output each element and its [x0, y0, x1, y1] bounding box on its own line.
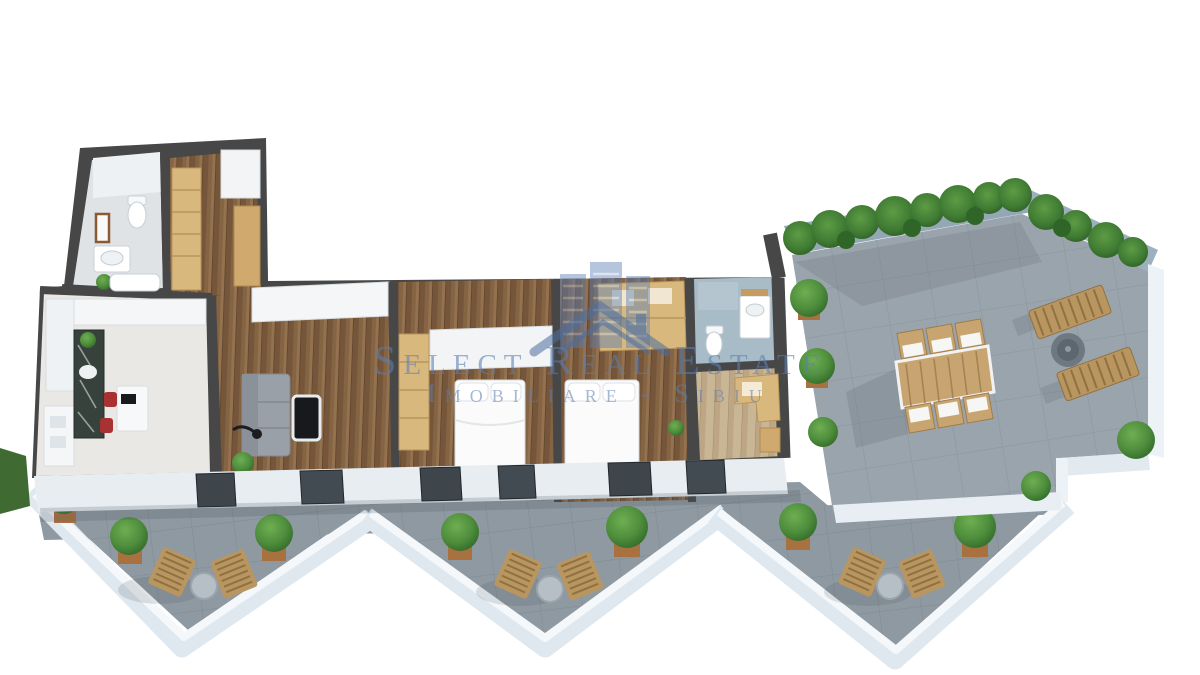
table-item [121, 394, 136, 404]
hall-wardrobe [172, 168, 201, 290]
bush [1117, 421, 1155, 459]
floor-plan-render: Select Real Estate Imobiliare - Sibiu [0, 0, 1200, 675]
palm-plant [903, 219, 921, 237]
palm-plant [1053, 219, 1071, 237]
living-plant [232, 452, 254, 474]
glass-door [420, 467, 462, 501]
round-ottoman [191, 573, 217, 599]
vanity-basin [746, 304, 764, 316]
watermark-brand-text: Select Real Estate [374, 337, 827, 383]
hedge-tree [998, 178, 1032, 212]
balcony-middle [366, 506, 726, 648]
bush [808, 417, 838, 447]
sink-basin [101, 251, 123, 265]
shower-area [698, 282, 738, 310]
bathtub [110, 274, 160, 291]
mirror [96, 214, 109, 242]
kitchen-appliance [50, 436, 66, 448]
palm-plant [837, 231, 855, 249]
bush [790, 279, 828, 317]
watermark-sub-text: Imobiliare - Sibiu [427, 379, 771, 408]
hedge-tree [1118, 237, 1148, 267]
kitchen-table [117, 386, 148, 431]
toilet [128, 202, 146, 228]
hall-cabinet [234, 206, 260, 286]
kitchen-appliance [50, 416, 66, 428]
red-chair [100, 418, 113, 433]
glass-door [300, 470, 344, 504]
round-ottoman [877, 573, 903, 599]
terrace [783, 178, 1164, 523]
kitchen-fridge-column [46, 299, 74, 391]
coffee-table [293, 396, 320, 440]
red-chair [104, 392, 117, 407]
wardrobe-cubby [648, 288, 672, 304]
office-shelf [760, 428, 780, 452]
sideboard [252, 282, 388, 322]
hall-closet [221, 150, 260, 198]
bathroom1-marble-wall [93, 152, 161, 198]
kitchen-sink [79, 365, 97, 379]
floor-plan-page: Select Real Estate Imobiliare - Sibiu [0, 0, 1200, 675]
glass-door [686, 460, 726, 494]
glass-door [608, 462, 652, 496]
fire-pit-center [1065, 346, 1071, 352]
palm-plant [966, 207, 984, 225]
apartment [32, 138, 784, 502]
bush [1021, 471, 1051, 501]
terrace-boundary-wall [770, 234, 779, 278]
edge-greenery [0, 448, 30, 514]
vanity-mirror [741, 289, 768, 296]
logo-chimney [636, 314, 646, 334]
round-ottoman [537, 576, 563, 602]
island-plant [80, 332, 96, 348]
glass-door [498, 465, 536, 499]
bedroom2-plant [668, 420, 684, 436]
vanity [740, 296, 770, 338]
glass-door [196, 473, 236, 507]
sofa-back [242, 374, 258, 456]
